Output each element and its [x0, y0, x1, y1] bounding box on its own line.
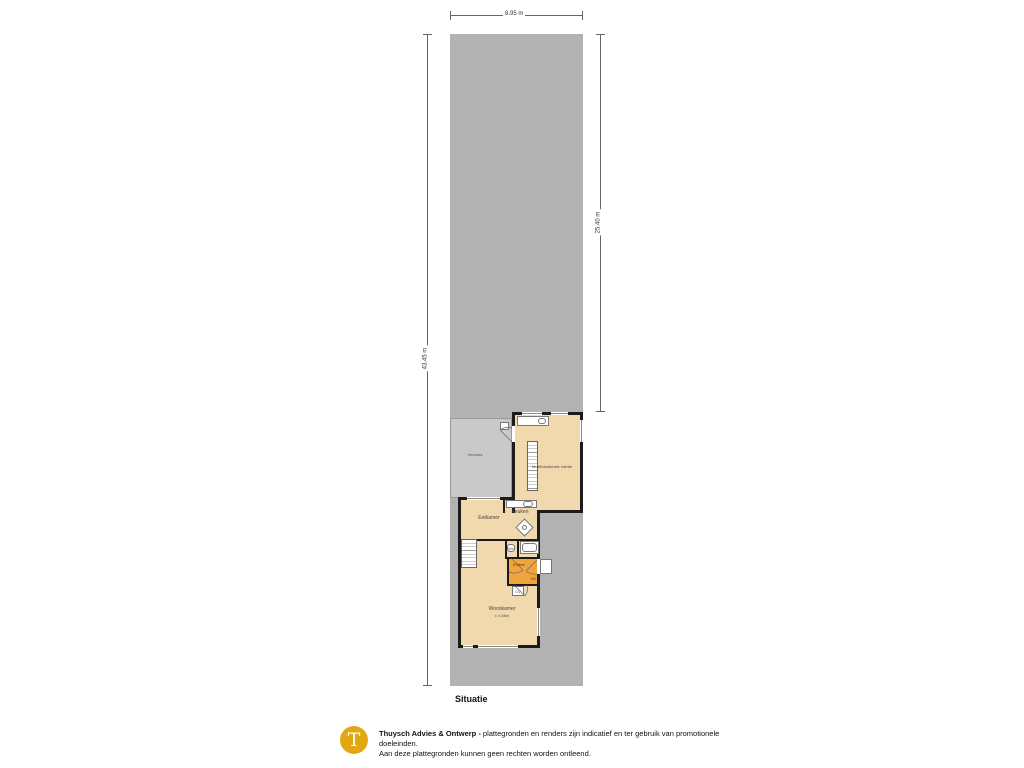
window: [467, 497, 500, 500]
footer-text: Thuysch Advies & Ontwerp - plattegronden…: [379, 729, 739, 759]
wall-main-left: [458, 497, 461, 648]
kitchen-sink: [523, 501, 533, 507]
mk-label: MK: [528, 576, 539, 581]
footer-line-1: Thuysch Advies & Ontwerp - plattegronden…: [379, 729, 739, 749]
wc-label: Wc: [506, 546, 516, 551]
wall-wc-bath: [517, 541, 519, 558]
window: [551, 412, 568, 415]
bathtub-inner: [522, 543, 537, 552]
woonkamer-size-label: ± 4.58m: [487, 613, 517, 618]
dimension-tick: [582, 11, 583, 20]
window: [478, 645, 518, 648]
dimension-tick: [596, 34, 605, 35]
achterhuis-label: Multifunctionele ruimte: [531, 464, 573, 469]
brand-logo: T: [340, 726, 368, 754]
footer-line-2: Aan deze plattegronden kunnen geen recht…: [379, 749, 739, 759]
window: [537, 608, 540, 636]
woonkamer-label: Woonkamer: [484, 606, 520, 612]
wall-kitchen-partition: [503, 497, 505, 513]
eetkamer-label: Eetkamer: [472, 515, 506, 521]
cv-label: CV: [512, 589, 524, 594]
dimension-label-top: 8.95 m: [503, 11, 525, 18]
dimension-tick: [450, 11, 451, 20]
veranda-area: [450, 418, 512, 498]
keuken-label: Keuken: [506, 509, 534, 515]
veranda-label: Veranda: [455, 452, 495, 457]
dimension-tick: [423, 34, 432, 35]
brand-name: Thuysch Advies & Ontwerp -: [379, 729, 481, 738]
veranda-step: [500, 422, 509, 430]
staircase: [461, 539, 477, 568]
sink: [538, 418, 546, 424]
footer: T Thuysch Advies & Ontwerp - plattegrond…: [340, 726, 739, 759]
entrance-step: [540, 559, 552, 574]
page: 8.95 m 43.45 m 25.40 m Veranda Entree MK: [0, 0, 1024, 768]
door-opening: [512, 426, 515, 442]
wall-extension-bottom: [537, 510, 583, 513]
disclaimer-2: Aan deze plattegronden kunnen geen recht…: [379, 749, 591, 758]
window: [580, 420, 583, 442]
window: [463, 645, 473, 648]
dimension-tick: [596, 411, 605, 412]
dimension-tick: [423, 685, 432, 686]
entree-label: Entree: [508, 562, 530, 567]
dimension-label-right: 25.40 m: [595, 210, 602, 236]
dimension-label-left: 43.45 m: [422, 346, 429, 372]
window: [522, 412, 542, 415]
corner-sink: [522, 525, 527, 530]
plan-caption: Situatie: [455, 694, 488, 704]
